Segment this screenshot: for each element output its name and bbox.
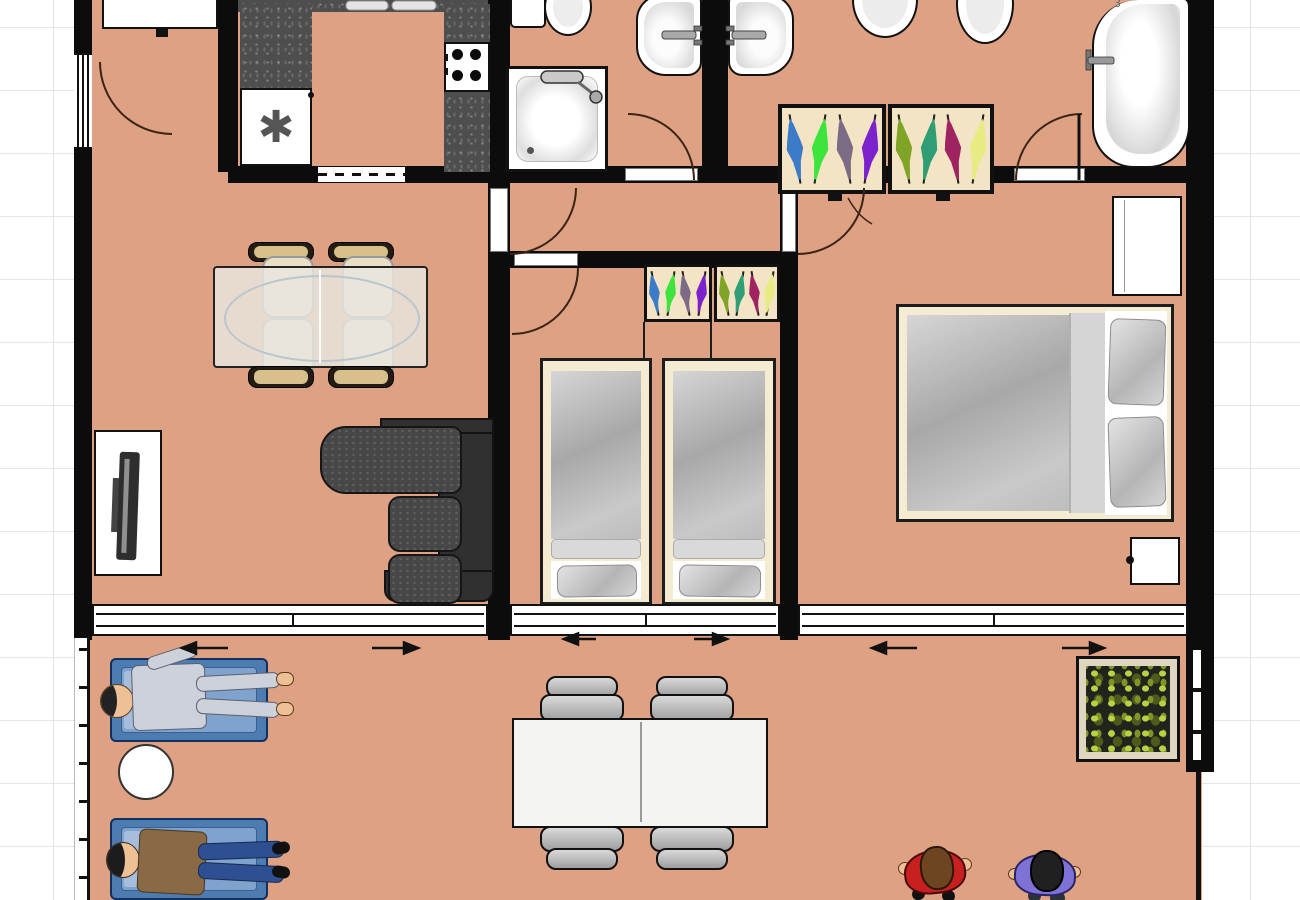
door-swing-arc-bathroom1 <box>628 114 694 180</box>
slide-arrow-right <box>694 634 727 645</box>
shower-head-icon <box>541 71 602 103</box>
slide-arrow-left <box>564 634 596 645</box>
slide-arrow-left <box>872 643 917 654</box>
door-swing-arc-entrance <box>100 62 172 134</box>
door-swing-arc-master <box>798 188 864 254</box>
slide-arrow-right <box>372 643 418 654</box>
faucet-basin-right <box>726 26 766 45</box>
annotations-overlay <box>0 0 1300 900</box>
faucet-bathtub <box>1086 50 1114 70</box>
door-swing-arc-living <box>510 188 576 254</box>
door-swing-arc-kids <box>512 268 578 334</box>
floor-plan-canvas: ✱ 3 <box>0 0 1300 900</box>
slide-arrow-right <box>1062 643 1104 654</box>
slide-arrow-left <box>182 643 228 654</box>
faucet-basin-left <box>662 26 702 45</box>
door-swing-arc-ensuite <box>1016 114 1082 180</box>
kitchen-sink <box>346 1 436 10</box>
